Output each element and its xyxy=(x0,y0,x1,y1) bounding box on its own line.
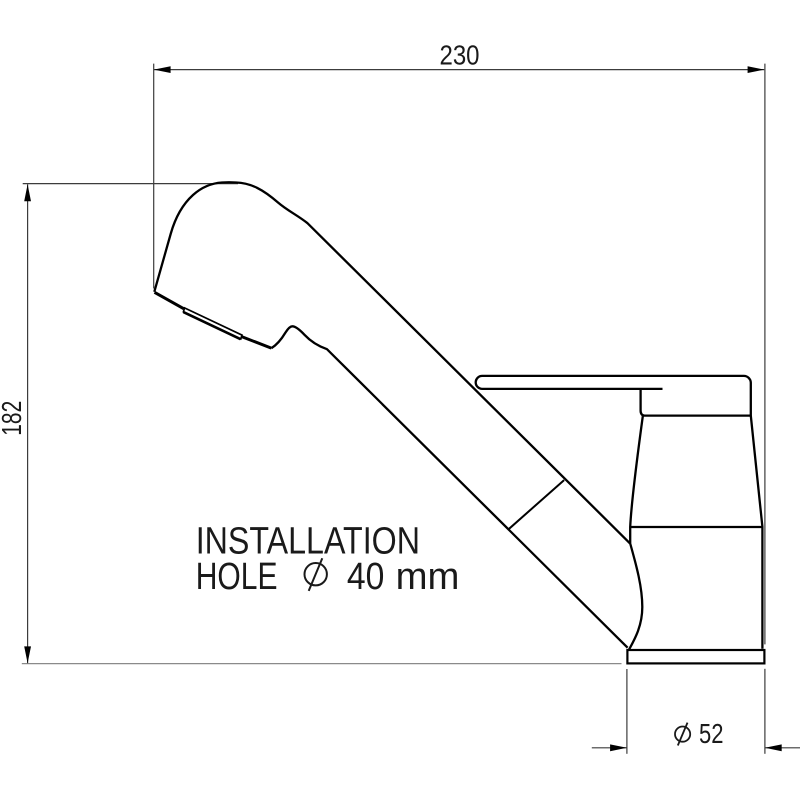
svg-text:182: 182 xyxy=(0,401,27,436)
svg-text:HOLE: HOLE xyxy=(196,555,278,598)
svg-text:40: 40 xyxy=(347,555,385,598)
svg-text:52: 52 xyxy=(699,718,724,749)
svg-text:mm: mm xyxy=(396,555,460,598)
svg-text:230: 230 xyxy=(440,40,480,71)
